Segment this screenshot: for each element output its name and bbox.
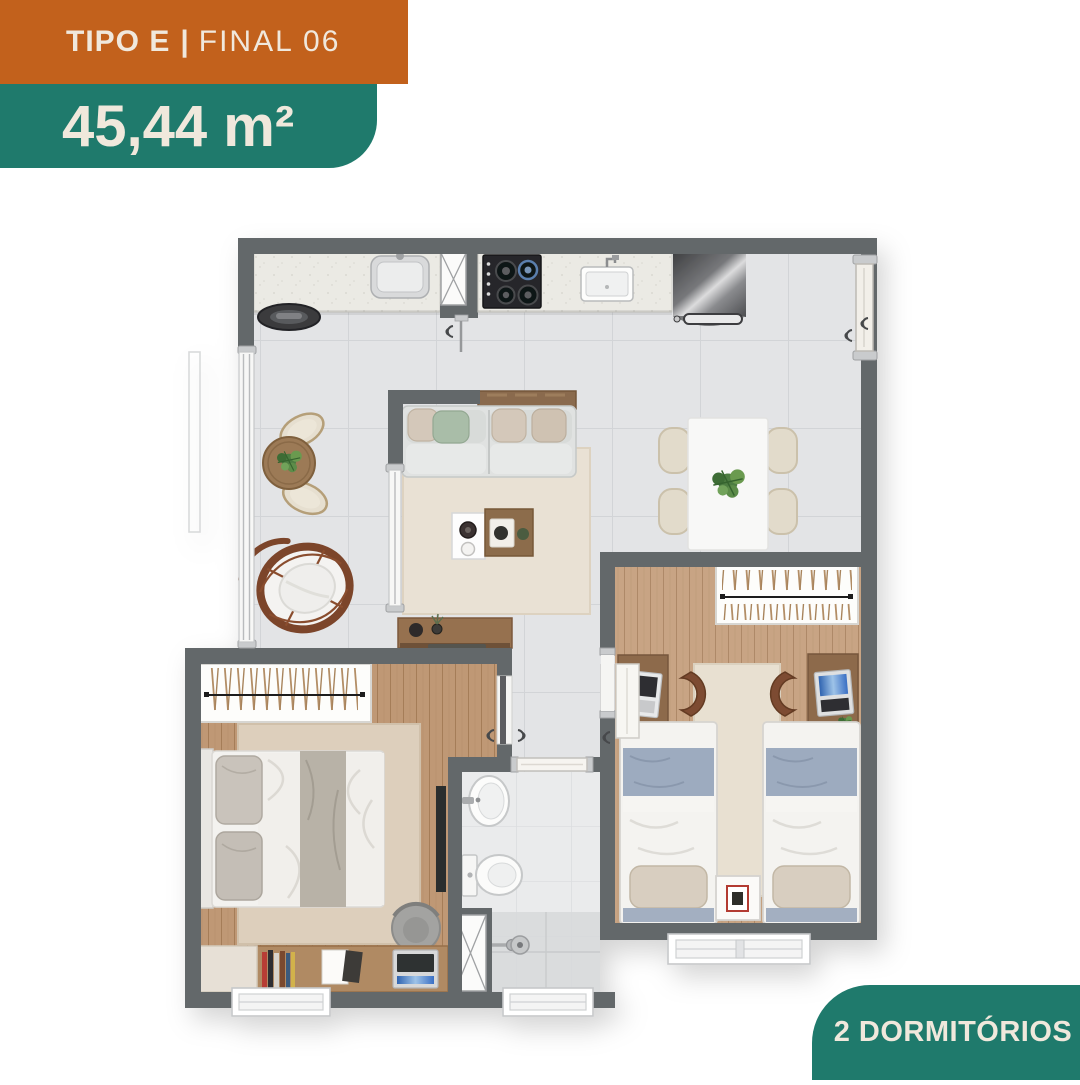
master-bed-icon (199, 749, 384, 908)
washer-icon (258, 304, 320, 330)
sideboard-icon (398, 614, 512, 651)
type-banner: TIPO E | FINAL 06 (0, 0, 408, 84)
balcony-window (189, 346, 256, 648)
master-wardrobe-icon (199, 664, 371, 722)
single-bed-left (620, 722, 717, 924)
type-label: TIPO E (66, 25, 170, 59)
master-cabinet (200, 946, 257, 992)
tv-icon (436, 786, 446, 892)
area-banner: 45,44 m² (0, 84, 377, 168)
bathroom-door (511, 757, 593, 772)
coffee-table-icon (452, 509, 533, 559)
master-window (232, 988, 330, 1016)
final-label: FINAL 06 (199, 25, 341, 59)
single-bed-right (763, 722, 860, 924)
type-divider: | (180, 25, 188, 59)
refrigerator-icon (673, 253, 746, 326)
nightstand-icon (716, 876, 760, 920)
toilet-icon (462, 855, 522, 896)
living-glass-partition (386, 464, 404, 612)
dormitorios-label: 2 DORMITÓRIOS (834, 1016, 1073, 1049)
poster-canvas: TIPO E | FINAL 06 45,44 m² 2 DORMITÓRIOS (0, 0, 1080, 1080)
area-label: 45,44 m² (62, 93, 294, 160)
balcony-rail (189, 352, 200, 532)
bedroom2-wardrobe-icon (716, 566, 858, 624)
master-desk-icon (255, 946, 448, 992)
cooktop-icon (483, 255, 541, 308)
dining-table-icon (688, 418, 768, 550)
master-office-chair (392, 904, 440, 952)
bedroom2-window (668, 934, 810, 964)
bistro-table-icon (263, 437, 315, 489)
dormitorios-badge: 2 DORMITÓRIOS (812, 985, 1080, 1080)
laptop-icon (393, 950, 438, 988)
shaft-kitchen (440, 252, 478, 318)
bathroom-window (503, 988, 593, 1016)
plan-root (185, 238, 877, 1016)
